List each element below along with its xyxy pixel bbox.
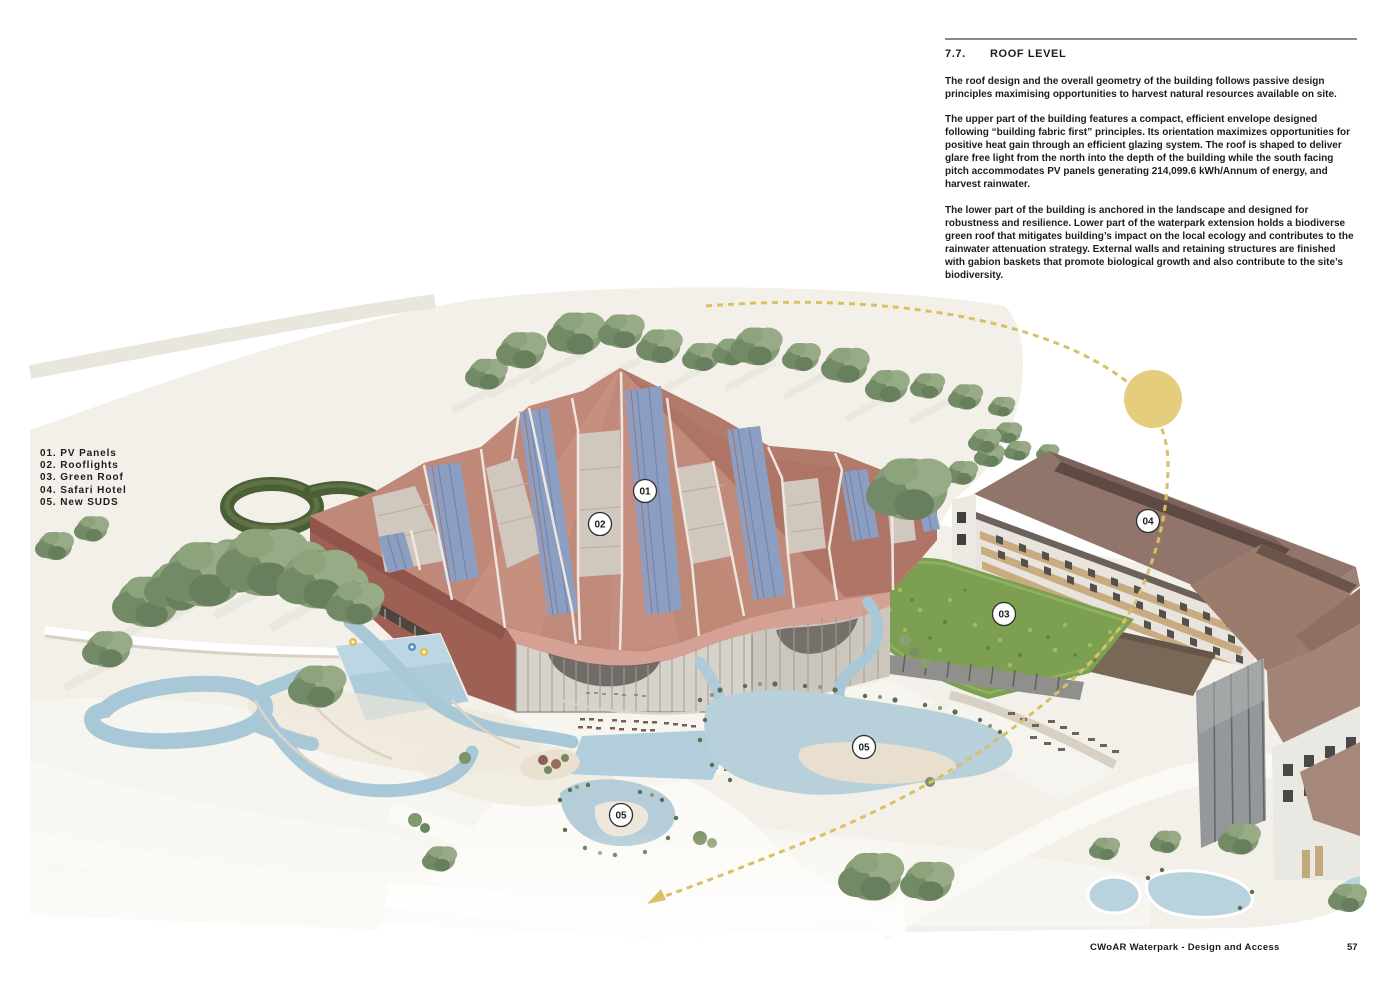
svg-text:01: 01 bbox=[639, 487, 651, 498]
svg-text:04: 04 bbox=[1142, 517, 1154, 528]
svg-text:02: 02 bbox=[594, 520, 606, 531]
svg-text:05: 05 bbox=[615, 811, 627, 822]
svg-text:05: 05 bbox=[858, 743, 870, 754]
svg-text:03: 03 bbox=[998, 610, 1010, 621]
